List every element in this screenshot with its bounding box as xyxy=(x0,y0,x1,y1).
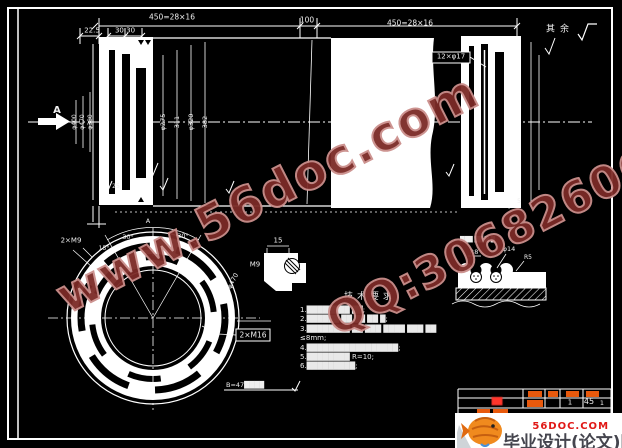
logo-name-text: 毕业设计(论文)网 xyxy=(503,428,622,448)
boss-dim-15: 15 xyxy=(274,238,283,245)
dim-450-left: 450=28×16 xyxy=(149,13,195,21)
groove-phi14-label: φ14 xyxy=(503,246,516,253)
title-block-qty: 1 xyxy=(568,400,572,407)
groove-r8-label: R8 xyxy=(470,249,479,256)
tech-req-line: ≤8mm; xyxy=(300,334,478,343)
boss-detail xyxy=(264,246,306,291)
drum-shell-section xyxy=(331,38,435,208)
fish-logo-icon xyxy=(457,413,507,448)
flange-bottom-note: B=47████ xyxy=(226,382,264,389)
cad-linework xyxy=(0,0,622,448)
technical-requirements: 技术要求 1.████████ ██; 2.██████ ██ ██ ██ █;… xyxy=(300,289,478,372)
tech-req-line: 1.████████ ██; xyxy=(300,306,478,315)
bolt-2xm16-label: 2×M16 xyxy=(239,331,266,339)
title-block-part-name: ██ xyxy=(492,399,503,406)
tech-req-line: 3.████████ ██ ███ ████ ███ ██ xyxy=(300,325,478,334)
dia-phi320: φ320 xyxy=(188,114,195,131)
tech-req-title: 技术要求 xyxy=(344,289,478,302)
section-a-label: A xyxy=(53,106,61,116)
title-block-sheet: 1 xyxy=(600,400,604,407)
dim-450-right: 450=28×16 xyxy=(387,19,433,27)
dim-22-5: 22.5 xyxy=(84,28,100,35)
dim-100: 100 xyxy=(300,16,314,24)
surface-others-note: 其余 xyxy=(546,26,574,35)
angle-30-left: 30° xyxy=(122,234,134,241)
tech-req-line: 4.█████████████████; xyxy=(300,344,478,353)
boss-m9-label: M9 xyxy=(250,262,261,269)
holes-12xphi17-label: 12×φ17 xyxy=(437,54,465,61)
dim-30-30: 30,30 xyxy=(115,28,135,35)
angle-15-label: 15° xyxy=(99,246,110,252)
left-flange-section xyxy=(87,37,153,228)
tech-req-line: 6.█████████; xyxy=(300,362,478,371)
roughness-symbol xyxy=(578,24,597,40)
roughness-25-label: 25 xyxy=(112,184,120,190)
dim-311: 311 xyxy=(174,116,181,128)
site-logo: 56DOC.COM 毕业设计(论文)网 xyxy=(455,413,622,448)
tech-req-line: 2.██████ ██ ██ ██ █; xyxy=(300,315,478,324)
title-block-material: 45 xyxy=(584,398,594,406)
cad-drawing-canvas: 450=28×16 100 450=28×16 22.5 30,30 其余 12… xyxy=(0,0,622,448)
dia-phi400: φ400 xyxy=(72,114,78,129)
groove-caption: ███ ██ █:█ xyxy=(460,238,495,244)
dia-phi380: φ380 xyxy=(88,114,94,129)
dia-phi470: φ470 xyxy=(80,114,86,129)
dia-phi275: φ275 xyxy=(160,114,167,131)
roughness-checks xyxy=(104,163,514,208)
roughness-5-label: 5 xyxy=(517,199,521,205)
view-a-small-label: A xyxy=(146,218,150,225)
angle-30-right: 30° xyxy=(177,233,189,240)
thread-2xm9-label: 2×M9 xyxy=(61,238,82,245)
groove-r5-label: R5 xyxy=(524,255,532,261)
dim-382: 382 xyxy=(202,116,209,128)
